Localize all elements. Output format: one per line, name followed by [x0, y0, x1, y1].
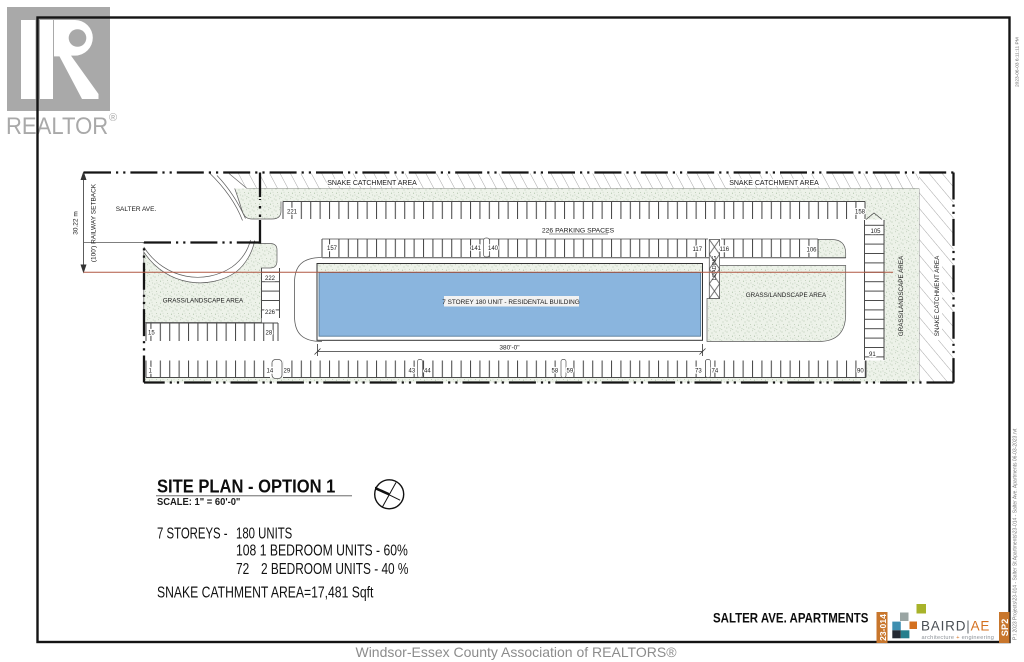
- svg-text:30.22 m: 30.22 m: [73, 211, 80, 235]
- svg-text:architecture + engineering: architecture + engineering: [922, 635, 995, 641]
- svg-text:44: 44: [424, 369, 431, 375]
- svg-text:REALTOR: REALTOR: [6, 112, 108, 139]
- svg-text:116: 116: [720, 247, 730, 253]
- svg-text:380'-0": 380'-0": [499, 345, 520, 352]
- svg-text:15: 15: [148, 331, 155, 337]
- svg-text:23-014: 23-014: [878, 614, 888, 641]
- svg-text:73: 73: [695, 369, 702, 375]
- svg-text:SALTER AVE. APARTMENTS: SALTER AVE. APARTMENTS: [713, 610, 868, 625]
- svg-text:59: 59: [567, 369, 574, 375]
- svg-text:LOADING: LOADING: [712, 256, 718, 281]
- svg-text:158: 158: [855, 210, 866, 216]
- svg-text:7 STOREY 180 UNIT - RESIDENTAL: 7 STOREY 180 UNIT - RESIDENTAL BUILDING: [442, 299, 579, 306]
- svg-text:105: 105: [871, 229, 882, 235]
- svg-text:72: 72: [236, 559, 249, 577]
- svg-text:SNAKE CATCHMENT AREA: SNAKE CATCHMENT AREA: [934, 255, 941, 336]
- svg-text:SCALE: 1" = 60'-0": SCALE: 1" = 60'-0": [157, 497, 240, 508]
- svg-text:117: 117: [693, 247, 703, 253]
- svg-text:226 PARKING SPACES: 226 PARKING SPACES: [542, 228, 615, 235]
- svg-text:14: 14: [267, 369, 274, 375]
- svg-text:106: 106: [807, 248, 818, 254]
- svg-text:SNAKE CATHMENT AREA=17,481 Sqf: SNAKE CATHMENT AREA=17,481 Sqft: [157, 583, 373, 601]
- svg-text:91: 91: [869, 352, 876, 358]
- svg-text:108 1 BEDROOM UNITS - 60%: 108 1 BEDROOM UNITS - 60%: [236, 541, 408, 559]
- svg-text:226: 226: [265, 310, 276, 316]
- svg-text:58: 58: [552, 369, 559, 375]
- svg-text:140: 140: [488, 246, 499, 252]
- svg-text:SP2: SP2: [1000, 619, 1010, 636]
- svg-text:43: 43: [409, 369, 416, 375]
- svg-text:®: ®: [109, 112, 117, 124]
- svg-text:GRASS/LANDSCAPE AREA: GRASS/LANDSCAPE AREA: [746, 292, 827, 299]
- svg-text:28: 28: [266, 331, 273, 337]
- svg-text:221: 221: [287, 210, 298, 216]
- svg-text:GRASS/LANDSCAPE AREA: GRASS/LANDSCAPE AREA: [163, 298, 244, 305]
- svg-text:90: 90: [857, 369, 864, 375]
- svg-text:(100') RAILWAY SETBACK: (100') RAILWAY SETBACK: [91, 183, 98, 262]
- svg-text:29: 29: [284, 369, 291, 375]
- svg-text:SNAKE CATCHMENT AREA: SNAKE CATCHMENT AREA: [729, 180, 819, 187]
- svg-text:141: 141: [471, 246, 482, 252]
- svg-text:Windsor-Essex County Associati: Windsor-Essex County Association of REAL…: [355, 644, 677, 660]
- svg-text:SNAKE CATCHMENT AREA: SNAKE CATCHMENT AREA: [327, 180, 417, 187]
- svg-text:BAIRD|AE: BAIRD|AE: [921, 619, 990, 634]
- svg-text:222: 222: [265, 276, 276, 282]
- svg-text:74: 74: [712, 369, 719, 375]
- svg-text:157: 157: [327, 246, 338, 252]
- svg-text:2 BEDROOM UNITS - 40 %: 2 BEDROOM UNITS - 40 %: [261, 559, 408, 577]
- svg-text:180 UNITS: 180 UNITS: [236, 525, 292, 542]
- svg-text:GRASS/LANDSCAPE AREA: GRASS/LANDSCAPE AREA: [898, 255, 905, 336]
- svg-text:SALTER AVE.: SALTER AVE.: [116, 206, 157, 213]
- svg-text:SITE PLAN - OPTION 1: SITE PLAN - OPTION 1: [157, 476, 336, 497]
- svg-text:2023-06-03 6:11:11 PM: 2023-06-03 6:11:11 PM: [1015, 37, 1021, 87]
- svg-text:7 STOREYS -: 7 STOREYS -: [157, 525, 228, 542]
- svg-text:P:\ 2023 Projects\23-014 - Sal: P:\ 2023 Projects\23-014 - Salter St Apa…: [1013, 428, 1019, 640]
